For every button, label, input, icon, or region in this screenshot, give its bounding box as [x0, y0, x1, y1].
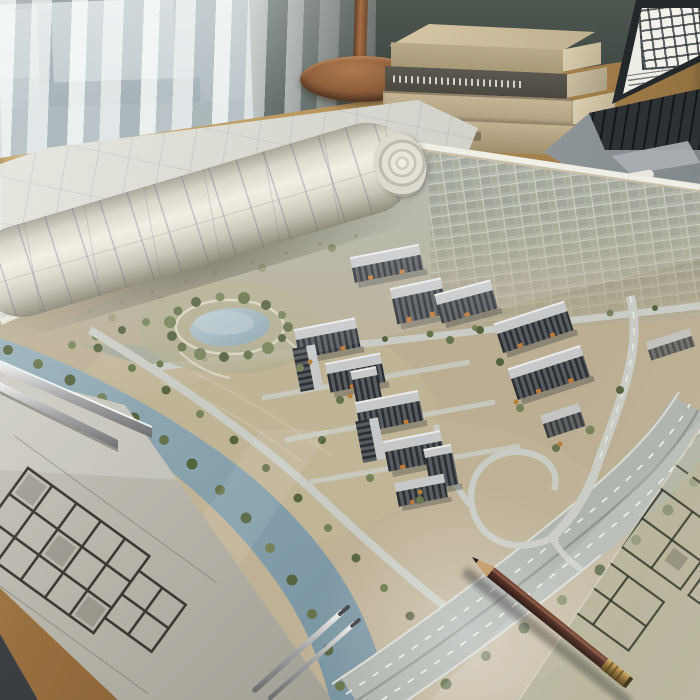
- pencil-shadow: [460, 566, 634, 700]
- architects-desk-scene: .roof{fill:#c6c8c9}.face{fill:#4d5256}.b…: [0, 0, 700, 700]
- pencil: [0, 0, 700, 700]
- pencil-body: [487, 567, 608, 668]
